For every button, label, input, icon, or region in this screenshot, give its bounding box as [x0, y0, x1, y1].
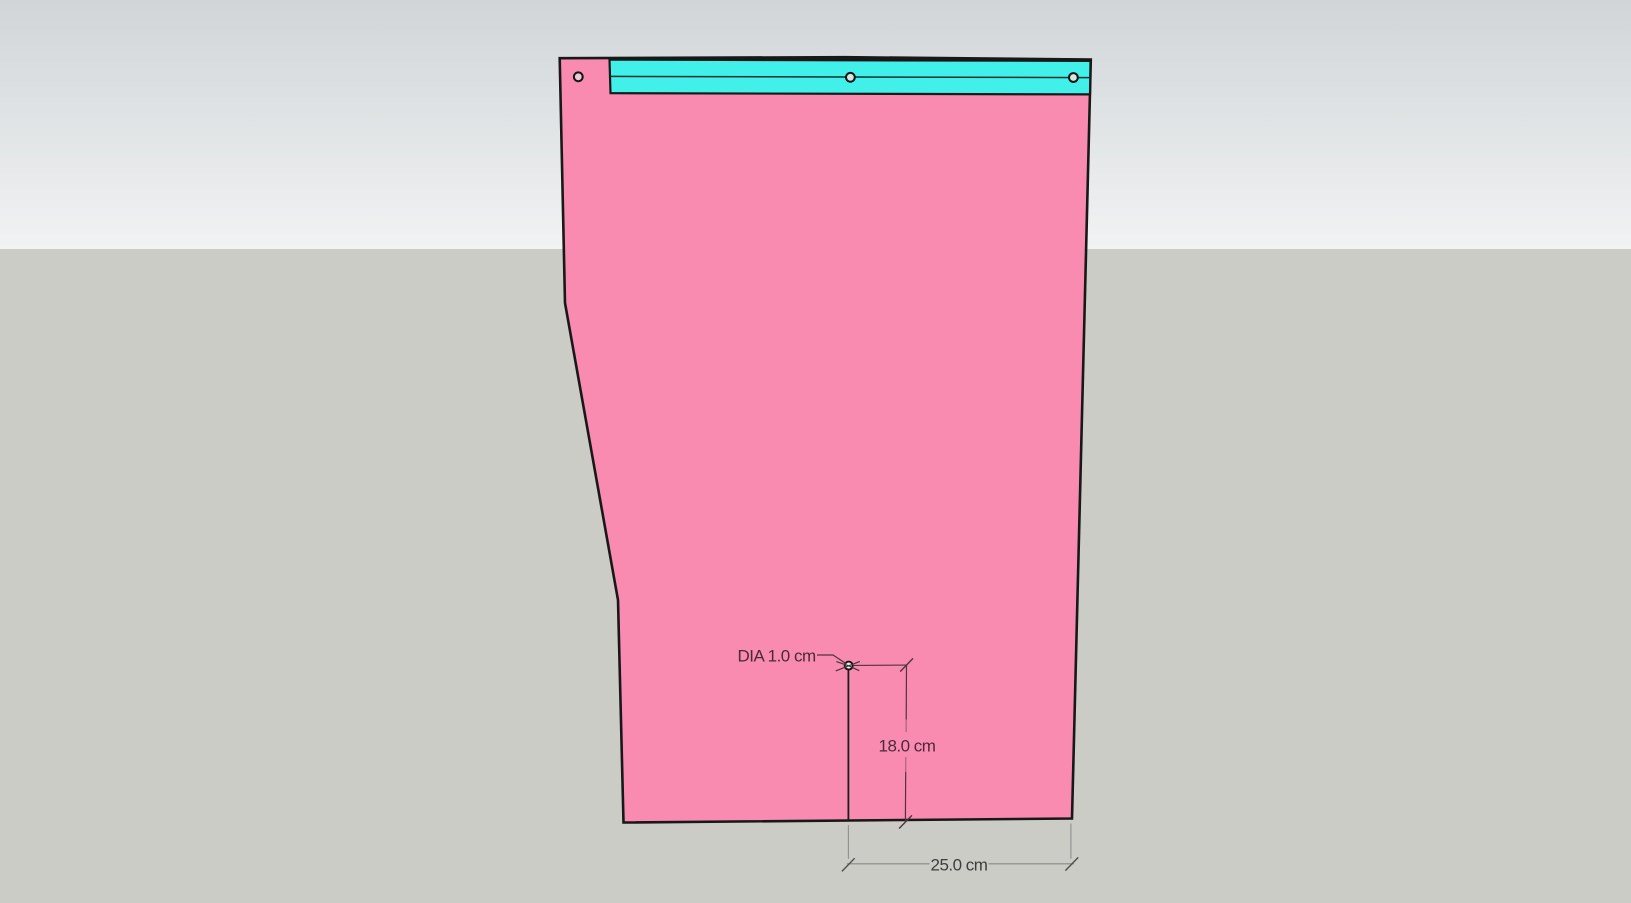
- svg-text:DIA 1.0 cm: DIA 1.0 cm: [738, 647, 816, 666]
- svg-text:25.0 cm: 25.0 cm: [931, 856, 988, 875]
- svg-text:18.0 cm: 18.0 cm: [879, 737, 936, 756]
